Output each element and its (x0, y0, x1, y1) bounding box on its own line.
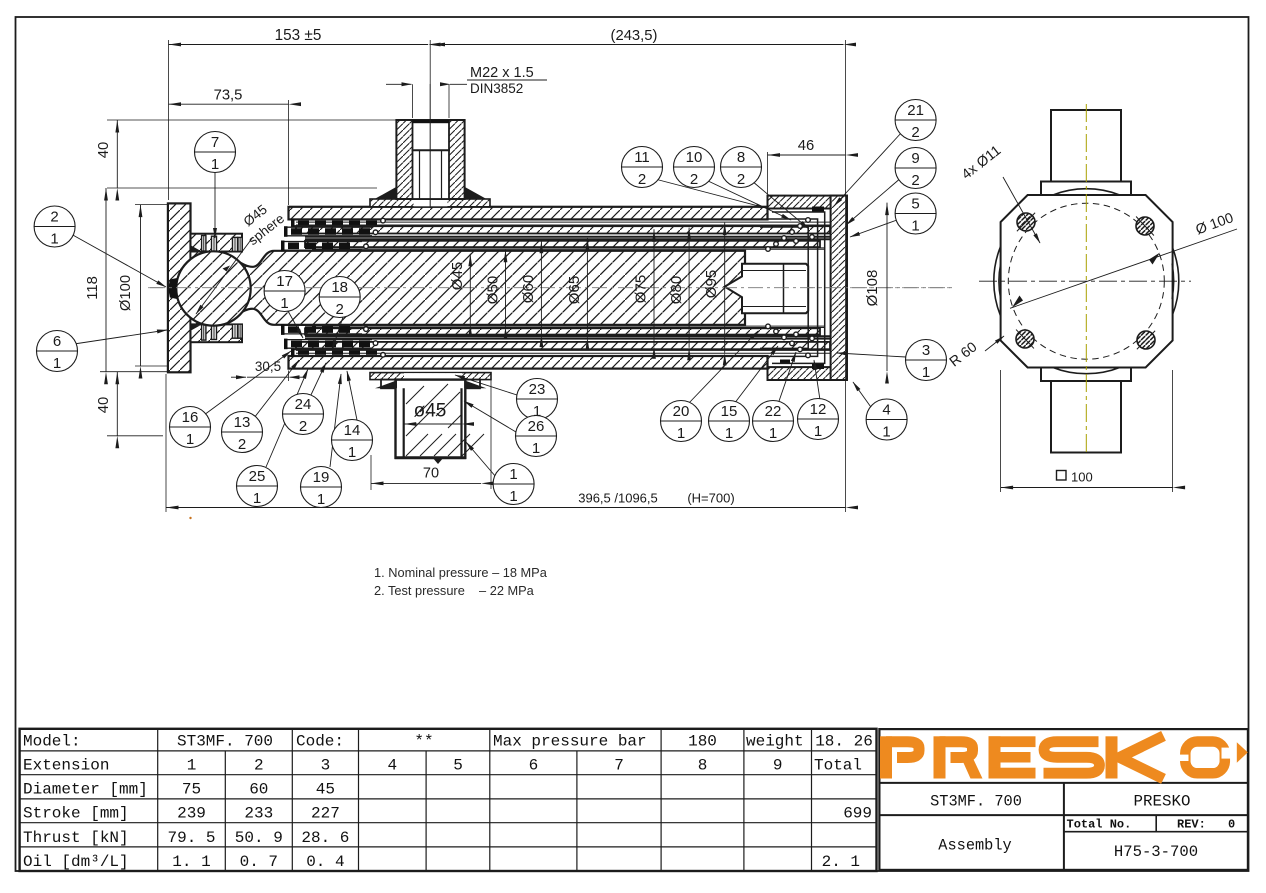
svg-text:153 ±5: 153 ±5 (275, 27, 322, 44)
svg-text:2: 2 (690, 171, 698, 188)
svg-text:13: 13 (234, 414, 251, 431)
svg-text:1: 1 (50, 230, 58, 247)
svg-text:4: 4 (882, 402, 890, 419)
svg-text:8: 8 (698, 756, 708, 774)
svg-text:6: 6 (529, 756, 539, 774)
svg-text:2. Test pressure – 22 MPa: 2. Test pressure – 22 MPa (374, 583, 535, 598)
svg-text:21: 21 (907, 102, 924, 119)
svg-text:DIN3852: DIN3852 (470, 81, 523, 96)
svg-text:Code:: Code: (296, 733, 344, 751)
svg-text:Assembly: Assembly (938, 837, 1011, 855)
svg-text:180: 180 (688, 733, 717, 751)
svg-text:233: 233 (244, 805, 273, 823)
svg-text:40: 40 (96, 142, 112, 158)
svg-text:2: 2 (238, 436, 246, 453)
svg-text:8: 8 (737, 149, 745, 166)
svg-text:1. 1: 1. 1 (172, 853, 210, 871)
svg-text:ø45: ø45 (414, 401, 447, 422)
svg-text:16: 16 (182, 409, 199, 426)
svg-text:REV:: REV: (1177, 818, 1206, 832)
svg-text:20: 20 (673, 403, 690, 420)
svg-text:1: 1 (317, 491, 325, 508)
svg-text:9: 9 (911, 150, 919, 167)
svg-text:1: 1 (187, 756, 197, 774)
svg-text:5: 5 (911, 196, 919, 213)
svg-text:7: 7 (614, 756, 624, 774)
svg-text:699: 699 (843, 805, 872, 823)
svg-text:11: 11 (634, 149, 650, 166)
svg-text:79. 5: 79. 5 (167, 829, 215, 847)
svg-text:Max pressure bar: Max pressure bar (493, 733, 647, 751)
svg-text:1: 1 (814, 423, 822, 440)
svg-text:Model:: Model: (23, 733, 81, 751)
svg-text:Ø50: Ø50 (485, 276, 502, 304)
svg-text:6: 6 (53, 333, 61, 350)
svg-text:75: 75 (182, 781, 201, 799)
svg-text:9: 9 (773, 756, 783, 774)
svg-text:1: 1 (911, 217, 919, 234)
svg-text:1: 1 (53, 355, 61, 372)
svg-text:17: 17 (276, 273, 293, 290)
svg-text:2: 2 (336, 301, 344, 318)
svg-text:12: 12 (810, 401, 827, 418)
svg-text:1: 1 (532, 440, 540, 457)
svg-text:25: 25 (249, 468, 266, 485)
svg-text:weight: weight (746, 733, 804, 751)
svg-text:22: 22 (765, 403, 782, 420)
svg-text:Stroke [mm]: Stroke [mm] (23, 805, 129, 823)
svg-text:H75-3-700: H75-3-700 (1114, 843, 1198, 861)
svg-text:2: 2 (50, 209, 58, 226)
svg-text:Extension: Extension (23, 756, 109, 774)
svg-text:Ø60: Ø60 (520, 275, 537, 303)
svg-text:2: 2 (638, 171, 646, 188)
svg-text:1: 1 (509, 466, 517, 483)
svg-text:4: 4 (387, 756, 397, 774)
svg-text:1: 1 (769, 425, 777, 442)
svg-text:Ø75: Ø75 (633, 275, 650, 303)
svg-text:1: 1 (348, 444, 356, 461)
svg-text:7: 7 (211, 134, 219, 151)
svg-text:2: 2 (299, 418, 307, 435)
svg-text:Diameter [mm]: Diameter [mm] (23, 781, 148, 799)
svg-text:23: 23 (529, 381, 546, 398)
svg-text:Ø65: Ø65 (566, 276, 583, 304)
svg-text:118: 118 (85, 276, 101, 300)
svg-text:1: 1 (882, 423, 890, 440)
svg-text:Ø100: Ø100 (118, 275, 134, 311)
svg-text:Ø80: Ø80 (668, 276, 685, 304)
svg-text:18: 18 (331, 279, 348, 296)
svg-text:(243,5): (243,5) (611, 28, 658, 44)
svg-text:0. 7: 0. 7 (240, 853, 278, 871)
svg-text:3: 3 (321, 756, 331, 774)
svg-text:1: 1 (677, 425, 685, 442)
svg-text:1: 1 (725, 425, 733, 442)
svg-text:Oil [dm³/L]: Oil [dm³/L] (23, 853, 129, 871)
svg-text:10: 10 (686, 149, 703, 166)
svg-text:(H=700): (H=700) (687, 491, 734, 506)
svg-text:396,5 /1096,5: 396,5 /1096,5 (578, 491, 658, 506)
svg-text:1: 1 (186, 431, 194, 448)
svg-text:1: 1 (253, 490, 261, 507)
svg-text:28. 6: 28. 6 (301, 829, 349, 847)
svg-text:Ø45: Ø45 (449, 262, 466, 290)
svg-text:2: 2 (254, 756, 264, 774)
svg-text:239: 239 (177, 805, 206, 823)
svg-text:Total: Total (814, 756, 862, 774)
svg-text:0. 4: 0. 4 (306, 853, 344, 871)
svg-text:1: 1 (922, 364, 930, 381)
svg-text:2. 1: 2. 1 (822, 853, 860, 871)
svg-text:73,5: 73,5 (214, 88, 243, 104)
svg-text:ST3MF. 700: ST3MF. 700 (930, 793, 1022, 811)
svg-text:1: 1 (211, 156, 219, 173)
svg-text:5: 5 (453, 756, 463, 774)
svg-text:40: 40 (96, 397, 112, 413)
svg-text:15: 15 (721, 403, 738, 420)
svg-text:ST3MF. 700: ST3MF. 700 (177, 733, 273, 751)
svg-text:**: ** (414, 733, 433, 751)
svg-text:1: 1 (509, 488, 517, 505)
svg-text:14: 14 (344, 422, 361, 439)
svg-text:24: 24 (295, 396, 312, 413)
svg-text:2: 2 (911, 172, 919, 189)
svg-text:18. 26: 18. 26 (815, 733, 873, 751)
svg-text:Ø108: Ø108 (864, 270, 881, 307)
svg-text:46: 46 (798, 138, 814, 154)
svg-text:2: 2 (911, 124, 919, 141)
svg-text:Thrust [kN]: Thrust [kN] (23, 829, 129, 847)
svg-text:60: 60 (249, 781, 268, 799)
svg-text:PRESKO: PRESKO (1134, 793, 1191, 811)
svg-text:1: 1 (280, 295, 288, 312)
svg-text:Ø95: Ø95 (703, 270, 720, 298)
svg-text:Total No.: Total No. (1067, 818, 1132, 832)
svg-text:M22 x 1.5: M22 x 1.5 (470, 65, 534, 81)
svg-text:26: 26 (528, 418, 545, 435)
svg-text:100: 100 (1071, 470, 1093, 485)
svg-text:0: 0 (1228, 818, 1235, 832)
svg-text:1. Nominal pressure – 18 MPa: 1. Nominal pressure – 18 MPa (374, 565, 548, 580)
svg-text:3: 3 (922, 342, 930, 359)
svg-text:45: 45 (316, 781, 335, 799)
svg-text:19: 19 (313, 469, 330, 486)
svg-text:70: 70 (423, 466, 439, 482)
svg-text:50. 9: 50. 9 (235, 829, 283, 847)
svg-text:2: 2 (737, 171, 745, 188)
svg-text:227: 227 (311, 805, 340, 823)
